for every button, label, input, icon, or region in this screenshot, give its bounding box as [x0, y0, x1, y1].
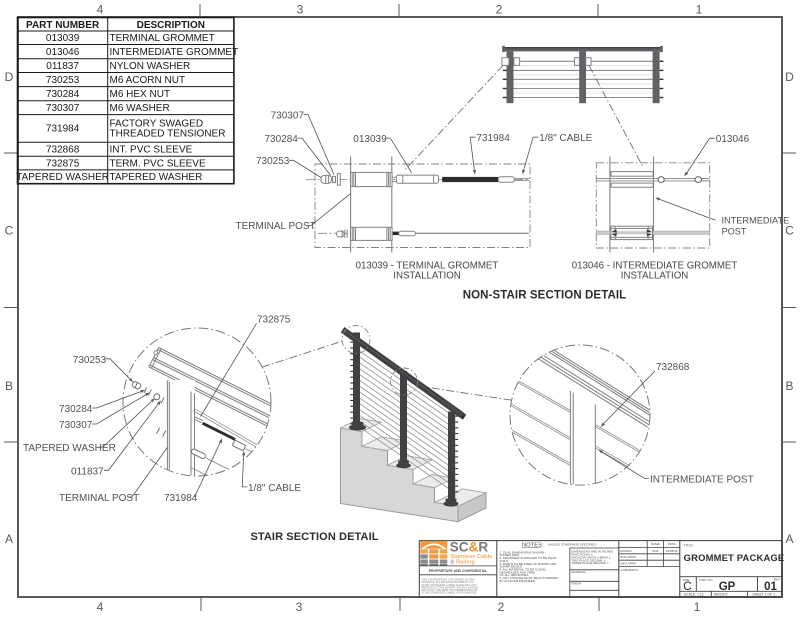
svg-text:1: 1 [696, 3, 703, 17]
svg-text:TERM. PVC SLEEVE: TERM. PVC SLEEVE [110, 158, 206, 169]
svg-text:TERMINAL POST: TERMINAL POST [59, 493, 139, 504]
svg-text:011837: 011837 [71, 466, 104, 477]
svg-text:013046: 013046 [46, 47, 80, 58]
svg-text:DWG. NO.: DWG. NO. [700, 578, 714, 582]
svg-text:SC&R: SC&R [450, 540, 489, 555]
svg-text:NON-STAIR SECTION DETAIL: NON-STAIR SECTION DETAIL [463, 290, 627, 302]
svg-text:PART NUMBER: PART NUMBER [26, 20, 100, 31]
svg-text:DRAWN: DRAWN [620, 549, 631, 553]
svg-text:THREADED TENSIONER: THREADED TENSIONER [110, 129, 226, 140]
svg-text:B: B [5, 379, 13, 393]
svg-text:730284: 730284 [265, 134, 299, 145]
svg-text:732875: 732875 [257, 314, 291, 325]
svg-text:MATERIAL: MATERIAL [571, 570, 586, 574]
svg-text:STAIR SECTION DETAIL: STAIR SECTION DETAIL [250, 531, 378, 543]
svg-text:TAPERED WASHER: TAPERED WASHER [23, 443, 116, 454]
svg-text:SC&R STAINLESS CABLE IS PROHIB: SC&R STAINLESS CABLE IS PROHIBITED. [422, 591, 478, 595]
svg-text:M6 ACORN NUT: M6 ACORN NUT [110, 75, 186, 86]
svg-text:DESCRIPTION: DESCRIPTION [137, 20, 205, 31]
svg-text:4: 4 [97, 600, 104, 614]
svg-text:UNLESS OTHERWISE SPECIFIED:: UNLESS OTHERWISE SPECIFIED: [548, 543, 597, 547]
svg-text:732868: 732868 [656, 362, 690, 373]
svg-text:013039: 013039 [46, 33, 80, 44]
svg-text:732875: 732875 [46, 158, 80, 169]
svg-text:730253: 730253 [73, 355, 107, 366]
svg-text:2: 2 [498, 600, 505, 614]
svg-text:M6 HEX NUT: M6 HEX NUT [110, 89, 171, 100]
svg-text:B: B [785, 379, 793, 393]
svg-text:WEIGHT:: WEIGHT: [714, 593, 728, 597]
svg-text:A: A [5, 532, 13, 546]
svg-text:INTERMEDIATE POST: INTERMEDIATE POST [650, 474, 754, 485]
svg-text:C: C [683, 579, 692, 593]
svg-text:POST: POST [722, 227, 747, 237]
svg-text:GROMMET PACKAGE: GROMMET PACKAGE [684, 552, 785, 563]
svg-text:MFG APPR.: MFG APPR. [620, 562, 637, 566]
svg-text:10/08/18: 10/08/18 [666, 549, 678, 553]
svg-text:ENG APPR.: ENG APPR. [620, 555, 636, 559]
svg-text:TERMINAL POST: TERMINAL POST [236, 221, 316, 232]
svg-text:TITLE:: TITLE: [684, 543, 694, 547]
svg-text:INSTALLATION: INSTALLATION [621, 271, 688, 282]
svg-text:SCR: SCR [652, 549, 659, 553]
svg-text:C: C [5, 224, 14, 238]
svg-text:NYLON WASHER: NYLON WASHER [110, 61, 191, 72]
svg-text:731984: 731984 [164, 493, 198, 504]
svg-text:INT. PVC SLEEVE: INT. PVC SLEEVE [110, 145, 193, 156]
svg-text:TERMINAL GROMMET: TERMINAL GROMMET [110, 33, 215, 44]
svg-text:730284: 730284 [59, 404, 93, 415]
svg-text:1/8" CABLE: 1/8" CABLE [539, 133, 592, 144]
svg-text:4: 4 [97, 3, 104, 17]
svg-text:730253: 730253 [46, 75, 80, 86]
svg-text:1/8" CABLE: 1/8" CABLE [248, 483, 301, 494]
svg-text:D: D [785, 70, 794, 84]
svg-text:SCALE: 1:12: SCALE: 1:12 [684, 593, 704, 597]
svg-text:3: 3 [296, 600, 303, 614]
svg-text:GP: GP [719, 581, 736, 593]
svg-text:011837: 011837 [46, 61, 79, 72]
svg-text:DATE: DATE [668, 542, 676, 546]
svg-text:TAPERED WASHER: TAPERED WASHER [16, 172, 109, 183]
svg-text:& Railing: & Railing [450, 559, 475, 565]
svg-text:731984: 731984 [476, 133, 510, 144]
svg-text:NAME: NAME [651, 542, 660, 546]
svg-text:2: 2 [496, 3, 503, 17]
svg-text:PROPRIETARY AND CONFIDENTIAL: PROPRIETARY AND CONFIDENTIAL [429, 569, 487, 573]
svg-text:730307: 730307 [59, 420, 93, 431]
svg-text:731984: 731984 [46, 124, 80, 135]
svg-text:013046: 013046 [716, 134, 750, 145]
svg-text:01: 01 [764, 581, 777, 593]
svg-text:C: C [785, 224, 794, 238]
svg-text:730253: 730253 [256, 156, 290, 167]
svg-text:730307: 730307 [46, 103, 80, 114]
svg-text:FINISH: FINISH [571, 582, 581, 586]
svg-text:730307: 730307 [271, 110, 305, 121]
svg-text:A: A [785, 532, 793, 546]
svg-text:TAPERED WASHER: TAPERED WASHER [110, 172, 203, 183]
svg-text:COMMENTS:: COMMENTS: [620, 568, 638, 572]
svg-text:SHEET 1 OF 1: SHEET 1 OF 1 [753, 593, 776, 597]
svg-text:INSTALLATION: INSTALLATION [393, 271, 460, 282]
svg-text:730284: 730284 [46, 89, 80, 100]
svg-text:INTERMEDIATE GROMMET: INTERMEDIATE GROMMET [110, 47, 239, 58]
svg-text:M6 WASHER: M6 WASHER [110, 103, 170, 114]
svg-text:732868: 732868 [46, 145, 80, 156]
svg-text:INTERMEDIATE: INTERMEDIATE [722, 216, 790, 226]
svg-text:THREE PLACE DECIMAL ±: THREE PLACE DECIMAL ± [571, 561, 609, 565]
svg-text:013039: 013039 [353, 134, 387, 145]
svg-text:3: 3 [297, 3, 304, 17]
svg-text:1: 1 [694, 600, 701, 614]
svg-text:D: D [5, 70, 14, 84]
svg-text:BY AN SC&R ENGINEER.: BY AN SC&R ENGINEER. [500, 579, 537, 583]
